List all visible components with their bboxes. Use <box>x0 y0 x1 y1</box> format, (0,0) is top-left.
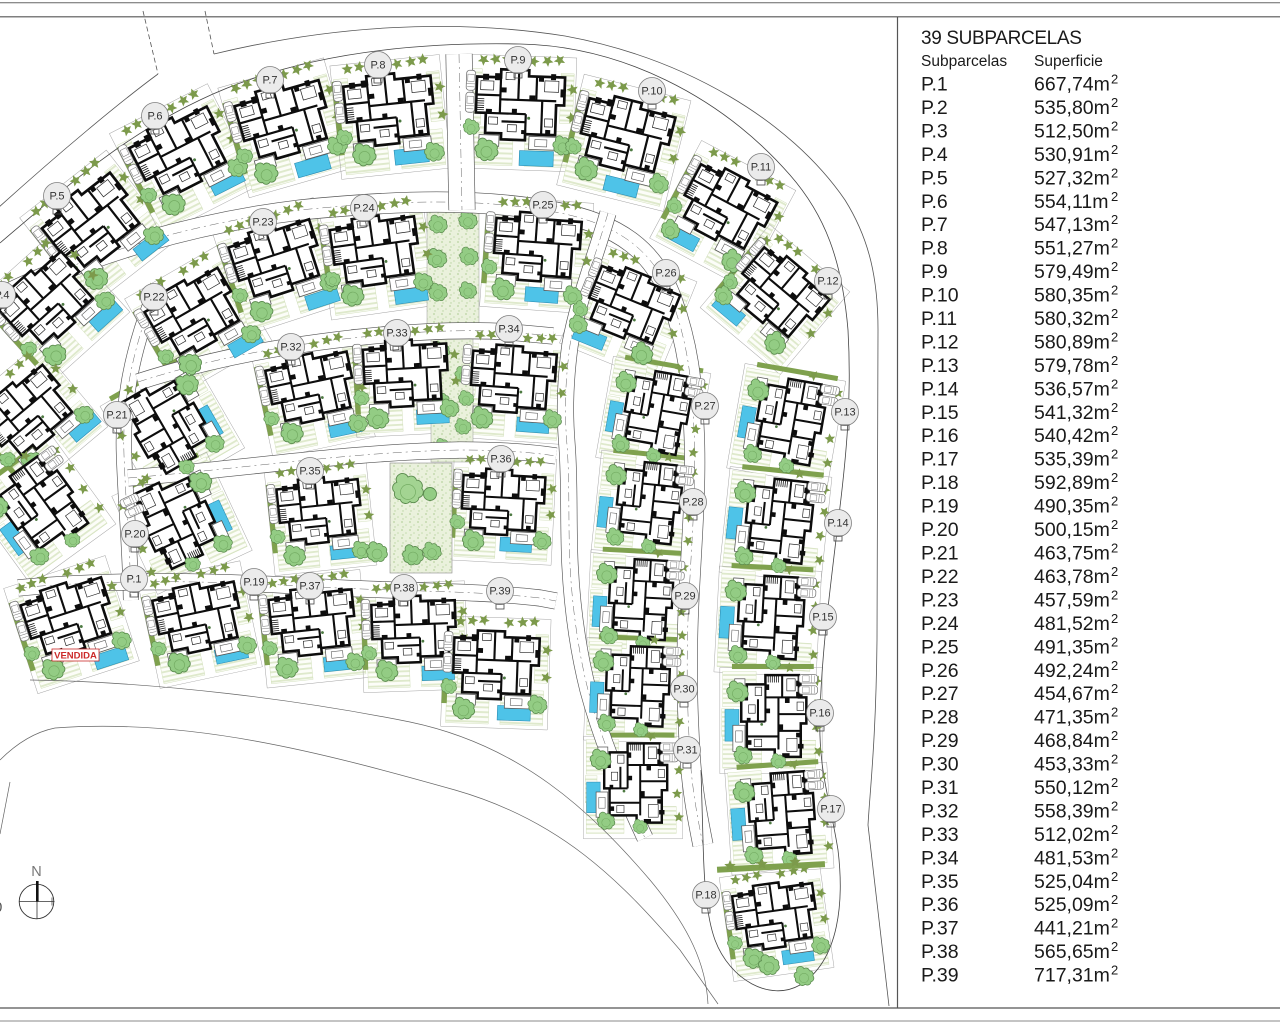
svg-text:453,33m: 453,33m <box>1034 754 1110 776</box>
svg-text:527,32m: 527,32m <box>1034 167 1110 189</box>
svg-text:P.27: P.27 <box>921 683 959 705</box>
svg-text:P.26: P.26 <box>921 660 959 682</box>
svg-text:P.24: P.24 <box>921 613 959 635</box>
svg-text:P.31: P.31 <box>921 777 959 799</box>
svg-text:2: 2 <box>1111 892 1118 907</box>
svg-text:P.22: P.22 <box>921 566 959 588</box>
svg-text:P.4: P.4 <box>0 290 10 302</box>
svg-text:P.7: P.7 <box>262 75 277 87</box>
svg-text:2: 2 <box>1111 165 1118 180</box>
svg-text:P.15: P.15 <box>812 612 833 624</box>
svg-text:P.23: P.23 <box>921 589 959 611</box>
svg-text:P.14: P.14 <box>827 518 848 530</box>
svg-text:Superficie: Superficie <box>1034 53 1103 70</box>
svg-text:2: 2 <box>1111 400 1118 415</box>
svg-text:P.13: P.13 <box>921 355 959 377</box>
svg-text:541,32m: 541,32m <box>1034 402 1110 424</box>
svg-text:491,35m: 491,35m <box>1034 636 1110 658</box>
svg-text:P.36: P.36 <box>490 454 511 466</box>
svg-text:P.4: P.4 <box>921 144 948 166</box>
svg-text:2: 2 <box>1111 963 1118 978</box>
svg-text:457,59m: 457,59m <box>1034 589 1110 611</box>
svg-text:N: N <box>31 864 41 880</box>
svg-text:2: 2 <box>1111 611 1118 626</box>
svg-text:2: 2 <box>1111 939 1118 954</box>
svg-text:2: 2 <box>1111 353 1118 368</box>
svg-text:580,89m: 580,89m <box>1034 331 1110 353</box>
svg-text:558,39m: 558,39m <box>1034 800 1110 822</box>
svg-text:P.28: P.28 <box>921 707 959 729</box>
svg-text:2: 2 <box>1111 306 1118 321</box>
svg-text:P.19: P.19 <box>243 577 264 589</box>
svg-text:554,11m: 554,11m <box>1034 191 1108 213</box>
svg-text:P.6: P.6 <box>147 111 162 123</box>
svg-text:512,50m: 512,50m <box>1034 120 1110 142</box>
svg-text:P.23: P.23 <box>252 217 273 229</box>
svg-text:P.22: P.22 <box>143 292 164 304</box>
svg-text:2: 2 <box>1111 564 1118 579</box>
svg-text:P.5: P.5 <box>49 191 64 203</box>
svg-text:P.5: P.5 <box>921 167 948 189</box>
svg-text:2: 2 <box>1111 95 1118 110</box>
svg-text:P.21: P.21 <box>106 410 127 422</box>
svg-text:463,78m: 463,78m <box>1034 566 1110 588</box>
svg-text:P.25: P.25 <box>921 636 959 658</box>
svg-text:592,89m: 592,89m <box>1034 472 1110 494</box>
svg-text:2: 2 <box>1111 423 1118 438</box>
svg-text:2: 2 <box>1111 212 1118 227</box>
svg-text:P.37: P.37 <box>299 581 320 593</box>
svg-text:2: 2 <box>1111 470 1118 485</box>
svg-text:2: 2 <box>1111 705 1118 720</box>
svg-text:P.39: P.39 <box>489 586 510 598</box>
svg-text:2: 2 <box>1111 658 1118 673</box>
svg-text:Subparcelas: Subparcelas <box>921 53 1007 70</box>
svg-text:2: 2 <box>1111 118 1118 133</box>
svg-text:468,84m: 468,84m <box>1034 730 1110 752</box>
svg-text:P.25: P.25 <box>532 200 553 212</box>
svg-text:535,80m: 535,80m <box>1034 97 1110 119</box>
svg-text:P.20: P.20 <box>124 529 145 541</box>
svg-text:525,04m: 525,04m <box>1034 871 1110 893</box>
svg-text:P.13: P.13 <box>834 407 855 419</box>
svg-text:2: 2 <box>1111 822 1118 837</box>
svg-text:P.30: P.30 <box>921 754 959 776</box>
svg-text:2: 2 <box>1111 775 1118 790</box>
svg-text:P.16: P.16 <box>809 708 830 720</box>
svg-text:579,49m: 579,49m <box>1034 261 1110 283</box>
svg-text:P.29: P.29 <box>921 730 959 752</box>
svg-text:2: 2 <box>1111 728 1118 743</box>
svg-text:667,74m: 667,74m <box>1034 74 1110 96</box>
svg-text:P.16: P.16 <box>921 425 959 447</box>
svg-text:P.8: P.8 <box>921 238 948 260</box>
svg-text:0: 0 <box>0 899 2 916</box>
svg-text:P.33: P.33 <box>921 824 959 846</box>
svg-text:2: 2 <box>1111 189 1118 204</box>
svg-text:2: 2 <box>1111 541 1118 556</box>
svg-text:512,02m: 512,02m <box>1034 824 1110 846</box>
svg-text:P.34: P.34 <box>921 847 959 869</box>
svg-text:2: 2 <box>1111 142 1118 157</box>
svg-text:2: 2 <box>1111 283 1118 298</box>
svg-text:P.26: P.26 <box>655 268 676 280</box>
svg-text:P.29: P.29 <box>674 591 695 603</box>
svg-text:540,42m: 540,42m <box>1034 425 1110 447</box>
svg-text:2: 2 <box>1111 869 1118 884</box>
svg-text:2: 2 <box>1111 259 1118 274</box>
svg-text:P.21: P.21 <box>921 543 959 565</box>
svg-text:P.35: P.35 <box>299 466 320 478</box>
svg-text:P.7: P.7 <box>921 214 948 236</box>
svg-text:565,65m: 565,65m <box>1034 941 1110 963</box>
svg-text:P.12: P.12 <box>921 331 959 353</box>
svg-text:P.18: P.18 <box>921 472 959 494</box>
svg-text:2: 2 <box>1111 236 1118 251</box>
svg-text:P.1: P.1 <box>921 74 948 96</box>
svg-text:P.11: P.11 <box>921 308 957 330</box>
svg-text:530,91m: 530,91m <box>1034 144 1110 166</box>
svg-text:P.11: P.11 <box>751 162 771 174</box>
svg-text:P.1: P.1 <box>126 574 141 586</box>
svg-text:441,21m: 441,21m <box>1034 918 1110 940</box>
svg-text:P.12: P.12 <box>817 276 838 288</box>
svg-text:471,35m: 471,35m <box>1034 707 1110 729</box>
svg-text:454,67m: 454,67m <box>1034 683 1110 705</box>
svg-text:P.18: P.18 <box>695 890 716 902</box>
svg-text:P.9: P.9 <box>510 55 525 67</box>
svg-text:2: 2 <box>1111 494 1118 509</box>
svg-text:717,31m: 717,31m <box>1034 965 1110 987</box>
svg-text:2: 2 <box>1111 634 1118 649</box>
svg-text:481,52m: 481,52m <box>1034 613 1110 635</box>
svg-text:P.38: P.38 <box>921 941 959 963</box>
svg-text:P.19: P.19 <box>921 496 959 518</box>
svg-text:2: 2 <box>1111 517 1118 532</box>
svg-text:535,39m: 535,39m <box>1034 449 1110 471</box>
svg-text:2: 2 <box>1111 447 1118 462</box>
svg-text:P.38: P.38 <box>393 583 414 595</box>
svg-text:P.34: P.34 <box>498 324 519 336</box>
svg-text:2: 2 <box>1111 845 1118 860</box>
svg-text:P.27: P.27 <box>694 401 715 413</box>
svg-text:2: 2 <box>1111 752 1118 767</box>
svg-text:P.39: P.39 <box>921 965 959 987</box>
svg-text:P.6: P.6 <box>921 191 948 213</box>
svg-text:579,78m: 579,78m <box>1034 355 1110 377</box>
svg-text:P.2: P.2 <box>921 97 948 119</box>
svg-text:P.17: P.17 <box>820 804 841 816</box>
svg-text:P.9: P.9 <box>921 261 948 283</box>
svg-text:P.32: P.32 <box>280 342 301 354</box>
svg-text:P.20: P.20 <box>921 519 959 541</box>
svg-text:580,32m: 580,32m <box>1034 308 1110 330</box>
svg-text:2: 2 <box>1111 376 1118 391</box>
svg-text:P.28: P.28 <box>682 497 703 509</box>
svg-text:481,53m: 481,53m <box>1034 847 1110 869</box>
svg-text:2: 2 <box>1111 329 1118 344</box>
svg-text:P.8: P.8 <box>370 60 385 72</box>
svg-text:P.33: P.33 <box>386 328 407 340</box>
svg-text:P.3: P.3 <box>921 120 948 142</box>
svg-text:547,13m: 547,13m <box>1034 214 1110 236</box>
svg-text:2: 2 <box>1111 916 1118 931</box>
svg-text:P.10: P.10 <box>641 86 662 98</box>
svg-text:500,15m: 500,15m <box>1034 519 1110 541</box>
svg-text:2: 2 <box>1111 587 1118 602</box>
svg-text:525,09m: 525,09m <box>1034 894 1110 916</box>
svg-text:580,35m: 580,35m <box>1034 285 1110 307</box>
svg-text:2: 2 <box>1111 681 1118 696</box>
svg-text:2: 2 <box>1111 72 1118 87</box>
svg-text:P.32: P.32 <box>921 800 959 822</box>
svg-text:P.31: P.31 <box>676 745 697 757</box>
svg-text:P.36: P.36 <box>921 894 959 916</box>
svg-text:536,57m: 536,57m <box>1034 378 1110 400</box>
svg-text:P.10: P.10 <box>921 285 959 307</box>
svg-text:P.24: P.24 <box>353 203 374 215</box>
svg-text:P.14: P.14 <box>921 378 959 400</box>
svg-text:P.35: P.35 <box>921 871 959 893</box>
svg-text:551,27m: 551,27m <box>1034 238 1110 260</box>
svg-text:463,75m: 463,75m <box>1034 543 1110 565</box>
svg-text:492,24m: 492,24m <box>1034 660 1110 682</box>
svg-text:P.17: P.17 <box>921 449 959 471</box>
svg-text:550,12m: 550,12m <box>1034 777 1110 799</box>
svg-text:VENDIDA: VENDIDA <box>54 651 97 662</box>
svg-text:490,35m: 490,35m <box>1034 496 1110 518</box>
svg-text:2: 2 <box>1111 798 1118 813</box>
svg-text:P.37: P.37 <box>921 918 959 940</box>
svg-text:P.15: P.15 <box>921 402 959 424</box>
svg-text:39 SUBPARCELAS: 39 SUBPARCELAS <box>921 28 1082 49</box>
svg-text:P.30: P.30 <box>673 684 694 696</box>
